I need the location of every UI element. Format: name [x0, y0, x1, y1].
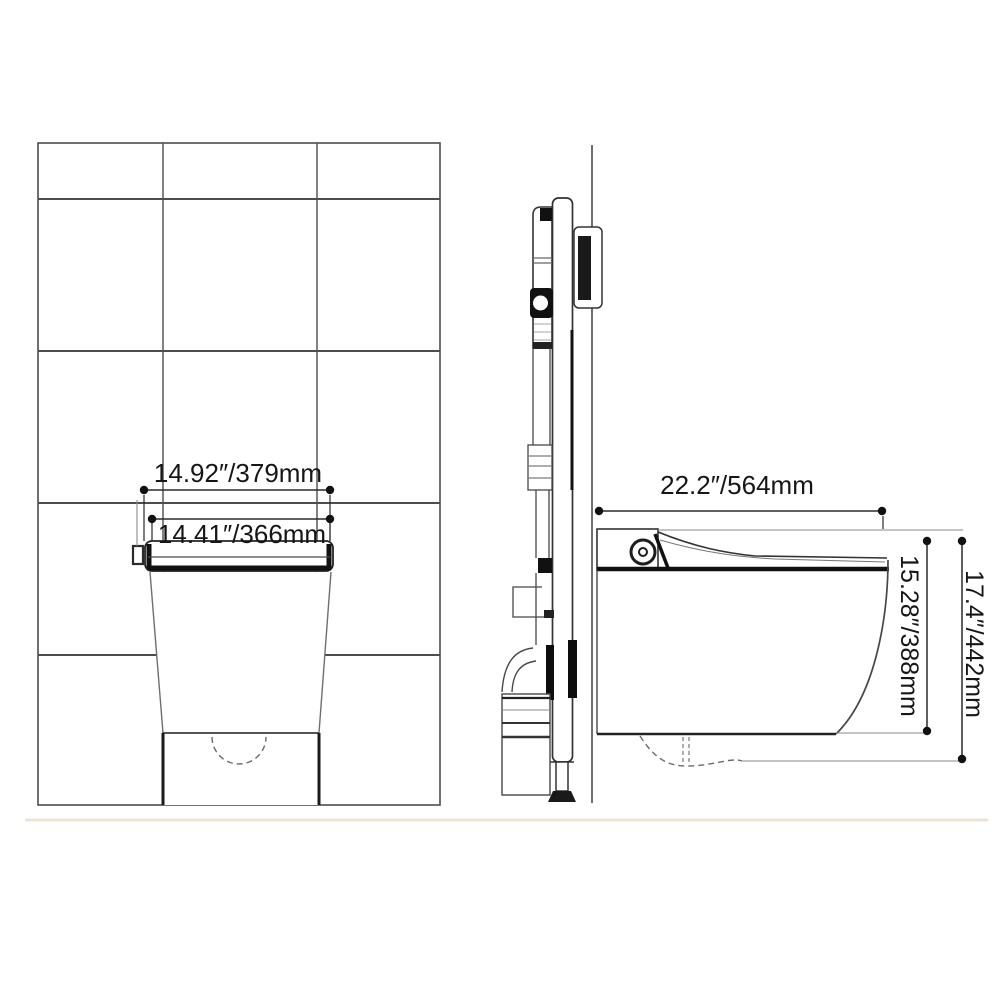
- diagram-canvas: 14.92″/379mm 14.41″/366mm: [0, 0, 1000, 1000]
- diagram-page: 14.92″/379mm 14.41″/366mm: [0, 0, 1000, 1000]
- front-inner-width-label: 14.41″/366mm: [158, 519, 326, 549]
- dim-side-depth: 22.2″/564mm: [595, 470, 886, 529]
- toilet-front: [133, 541, 333, 805]
- wall-bracket: [574, 227, 602, 308]
- bowl-front-body: [150, 572, 331, 733]
- toilet-side: [597, 529, 889, 766]
- bowl-front-base: [163, 733, 319, 805]
- front-outer-width-label: 14.92″/379mm: [154, 458, 322, 488]
- cistern-tank: [530, 207, 553, 349]
- trapway-arc: [640, 736, 742, 766]
- carrier-frame: [502, 198, 602, 802]
- dim-front-inner-width: 14.41″/366mm: [148, 515, 334, 549]
- side-total-height-label: 17.4″/442mm: [960, 570, 988, 718]
- side-rim-height-label: 15.28″/388mm: [895, 555, 923, 717]
- front-view: 14.92″/379mm 14.41″/366mm: [38, 143, 440, 805]
- side-depth-label: 22.2″/564mm: [660, 470, 814, 500]
- drain-outlet: [502, 648, 550, 795]
- hinge-circle: [631, 540, 655, 564]
- seat-side-tab: [133, 546, 143, 564]
- frame-foot: [548, 791, 576, 802]
- side-view: 22.2″/564mm 15.28″/388mm 17.4″/442mm: [502, 145, 988, 803]
